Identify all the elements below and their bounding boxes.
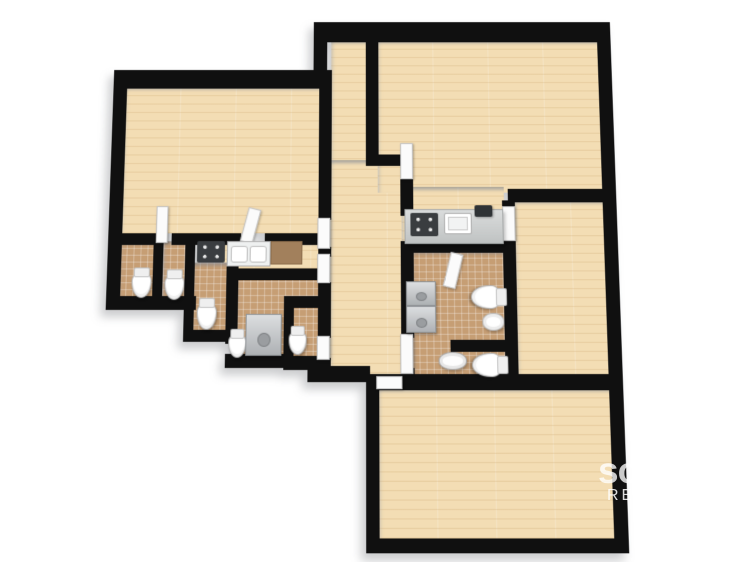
coffee-machine	[474, 205, 492, 217]
door-bath-cluster-door	[400, 334, 413, 374]
wall	[307, 366, 370, 382]
door-top-room-door	[400, 143, 413, 179]
floorplan-image: so RE	[0, 0, 749, 562]
wall	[366, 31, 379, 156]
floorplan	[0, 15, 749, 562]
wall	[314, 22, 603, 42]
wall	[508, 189, 617, 202]
wall	[366, 374, 380, 552]
door-corridor-to-left-unit-2	[317, 254, 330, 283]
kitchen-sink	[444, 213, 472, 234]
floor-living-room-left	[120, 87, 321, 234]
door-left-room-door-1	[156, 206, 169, 243]
washer-3	[245, 314, 282, 356]
wall	[120, 70, 332, 89]
wall	[284, 296, 322, 308]
floor-living-room-bottom	[378, 388, 616, 539]
washer-1	[406, 281, 436, 306]
floor-corridor	[331, 40, 368, 164]
kitchenette-sink	[227, 241, 271, 266]
door-corridor-to-left-unit-1	[317, 218, 330, 249]
door-wc5-door	[317, 336, 330, 360]
door-bedroom-door	[502, 206, 516, 241]
basin	[439, 352, 467, 370]
wall	[152, 241, 164, 306]
wall	[366, 538, 629, 553]
floor-bedroom-right	[514, 200, 611, 376]
kitchenette-stove	[197, 241, 225, 262]
wall	[318, 70, 331, 220]
kitchenette-counter	[270, 241, 302, 264]
door-entrance-door	[376, 376, 402, 389]
wall	[110, 233, 156, 245]
bidet	[482, 313, 504, 331]
wall	[226, 268, 322, 280]
wall	[106, 296, 196, 310]
wall	[451, 340, 519, 352]
stove-main	[410, 213, 438, 236]
wall	[318, 282, 331, 338]
washer-2	[406, 306, 436, 333]
